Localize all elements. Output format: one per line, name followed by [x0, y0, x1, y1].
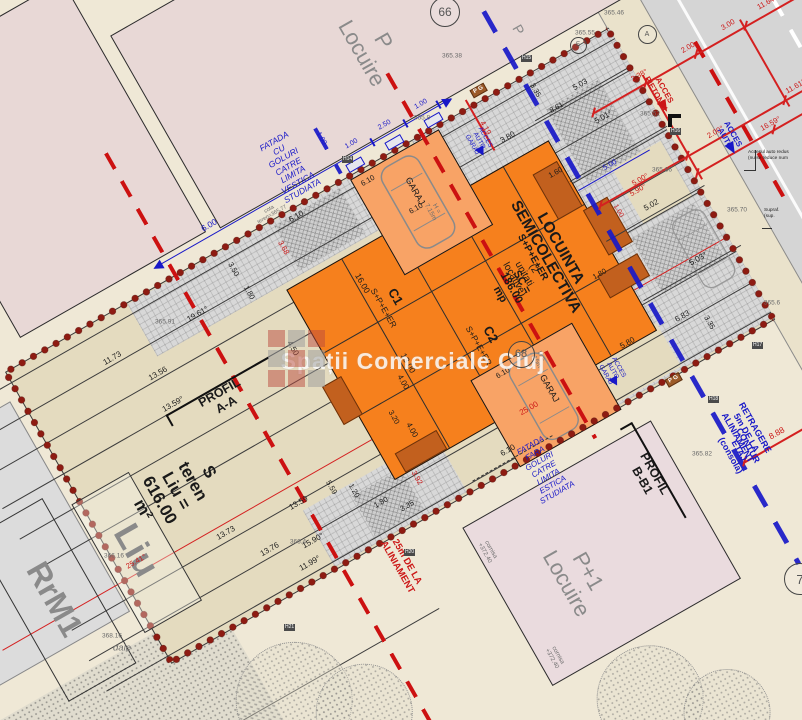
boundary-point-marker: H15 — [521, 55, 532, 62]
watermark-logo-square — [308, 370, 325, 387]
annotation-label: 365.55 — [575, 29, 595, 36]
annotation-label: 365.38 — [442, 52, 462, 59]
watermark-logo-square — [288, 330, 305, 347]
annotation-label: 365.70 — [727, 206, 747, 213]
annotation-overlay: Spații Comerciale Cluj dale365.46365.553… — [0, 0, 802, 720]
annotation-label: 365.82 — [692, 450, 712, 457]
annotation-label: 365.46 — [604, 9, 624, 16]
boundary-point-marker: H18 — [708, 396, 719, 403]
annotation-label: 366.4 — [290, 538, 306, 545]
reference-circle: 7 — [784, 563, 802, 595]
paving-dale-label: dale — [113, 644, 131, 655]
reference-circle: 66 — [430, 0, 460, 27]
annotation-label: 365.8 — [414, 114, 430, 121]
watermark-logo-square — [268, 350, 285, 367]
boundary-point-marker: H20 — [404, 549, 415, 556]
annotation-label: 366.16 — [104, 552, 124, 559]
annotation-label: 365.6 — [764, 299, 780, 306]
boundary-point-marker: H21 — [284, 624, 295, 631]
watermark-logo-square — [268, 330, 285, 347]
road-access-note: Accesul auto redus (nu se reduce num — [748, 150, 802, 162]
reference-circle: A — [638, 25, 657, 44]
reference-circle: 68 — [508, 341, 535, 368]
annotation-label: 365.91 — [155, 318, 175, 325]
boundary-point-marker: H16 — [670, 128, 681, 135]
annotation-label: 368.16 — [102, 632, 122, 639]
site-plan: P LocuirePP+1 LocuireLiuRrM1S teren Liu … — [0, 0, 802, 720]
watermark-logo-square — [288, 350, 305, 367]
annotation-label: 365.52 — [640, 110, 660, 117]
watermark-logo-square — [308, 330, 325, 347]
watermark-logo-square — [268, 370, 285, 387]
note-bracket — [762, 228, 772, 229]
boundary-point-marker: H17 — [752, 342, 763, 349]
survey-mark — [668, 114, 672, 127]
watermark-logo-square — [288, 370, 305, 387]
reference-circle: E — [570, 37, 587, 54]
boundary-point-marker: H14 — [342, 156, 353, 163]
surface-note: Supraf. (sup. — [764, 208, 802, 220]
annotation-label: 365.66 — [652, 166, 672, 173]
watermark-logo-square — [308, 350, 325, 367]
